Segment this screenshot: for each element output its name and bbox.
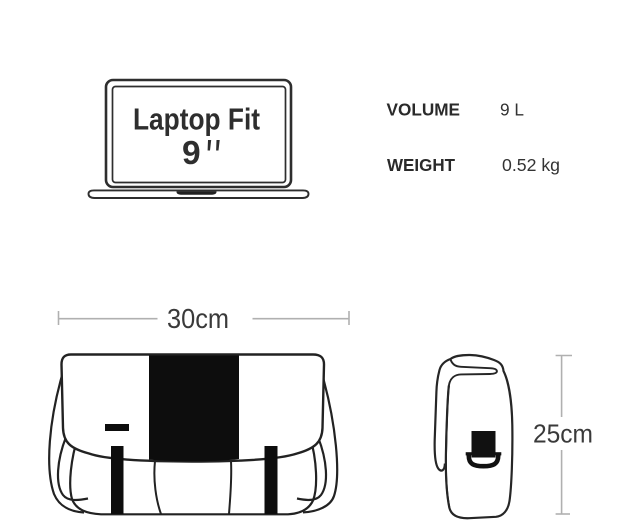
svg-text:9: 9: [182, 135, 201, 172]
svg-text:9 L: 9 L: [500, 100, 524, 120]
svg-text:0.52 kg: 0.52 kg: [502, 155, 560, 175]
svg-text:30cm: 30cm: [167, 303, 229, 334]
svg-text:25cm: 25cm: [533, 419, 593, 449]
svg-text:WEIGHT: WEIGHT: [387, 155, 455, 175]
svg-text:Laptop Fit: Laptop Fit: [133, 102, 260, 137]
svg-text:VOLUME: VOLUME: [387, 100, 461, 120]
